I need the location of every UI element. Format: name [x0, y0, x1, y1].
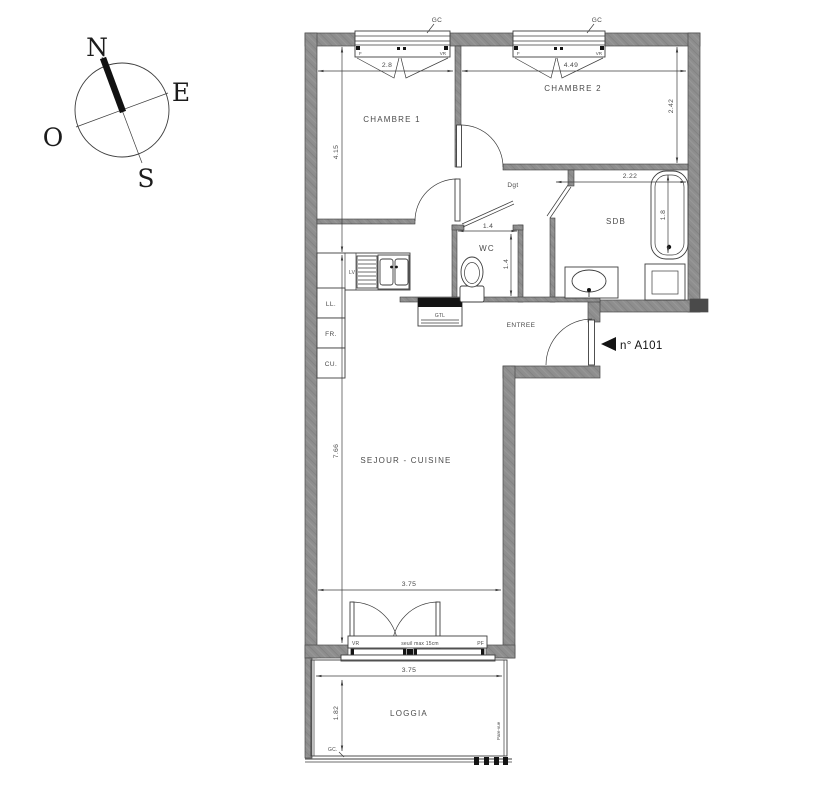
dim-chambre2-depth: 2.42: [668, 99, 675, 113]
window-hinge-icon: [356, 46, 360, 50]
dim-chambre1-depth: 4.15: [333, 145, 340, 159]
window2-f-label: F: [517, 51, 520, 56]
wall-chambre1-south: [317, 219, 415, 224]
pare-vue-label: Pare-vue: [496, 721, 501, 740]
room-label-entree: ENTREE: [507, 322, 536, 329]
gc-label-loggia: GC.: [328, 747, 338, 753]
window-handle-icon: [403, 47, 406, 50]
sink-basin-right: [395, 259, 408, 285]
sink-basin-left: [380, 259, 393, 285]
unit-number-label: n° A101: [620, 340, 663, 352]
entry-door-leaf: [589, 320, 595, 365]
window-handle-icon: [554, 47, 557, 50]
dim-chambre2-width: 4.49: [564, 62, 578, 69]
dim-bathtub-length: 1.8: [660, 210, 667, 220]
bay-seuil-label: seuil max 15cm: [401, 641, 439, 647]
wall-right-upper: [688, 33, 700, 312]
dim-wc-depth: 1.4: [503, 259, 510, 269]
wc-fixtures: [460, 257, 484, 302]
wall-chambre2-south: [503, 164, 688, 170]
wall-left: [305, 33, 317, 658]
window-frame: [513, 31, 605, 57]
room-label-chambre2: CHAMBRE 2: [544, 84, 601, 93]
room-label-chambre1: CHAMBRE 1: [363, 115, 420, 124]
wall-sdb-west: [550, 218, 555, 302]
lv-label: LV: [349, 270, 356, 276]
sink-tap-icon: [390, 266, 393, 269]
wall-wc-top-right-stub: [513, 225, 523, 230]
loggia-post: [503, 757, 508, 765]
room-label-sejour-cuisine: SEJOUR - CUISINE: [360, 456, 451, 465]
window-handle-icon: [560, 47, 563, 50]
bay-vr-label: VR: [352, 641, 360, 647]
loggia-post: [474, 757, 479, 765]
gtl-unit: GTL: [418, 298, 462, 326]
toilet-tank: [460, 286, 484, 302]
window-handle-icon: [397, 47, 400, 50]
window1-vr-label: VR: [440, 51, 447, 56]
wall-wc-right: [518, 225, 523, 302]
loggia-post: [484, 757, 489, 765]
wall-bottom-right: [597, 300, 700, 312]
compass-north-label: N: [86, 33, 108, 62]
room-label-dgt: Dgt: [507, 182, 518, 189]
bay-pf-label: PF: [477, 641, 484, 647]
sink-tap-icon: [587, 288, 591, 292]
bay-rail-right: [414, 649, 484, 655]
wall-entree-south: [503, 366, 600, 378]
dim-loggia-depth: 1.82: [333, 706, 340, 720]
room-label-loggia: LOGGIA: [390, 709, 428, 718]
window-hinge-icon: [444, 46, 448, 50]
wall-wc-left: [452, 225, 457, 302]
compass-west-label: O: [43, 123, 64, 152]
loggia-post: [494, 757, 499, 765]
fr-label: FR.: [325, 331, 337, 338]
wall-sdb-stub: [568, 170, 574, 186]
gc-label-window2: GC: [592, 17, 603, 24]
dim-sejour-width: 3.75: [402, 581, 416, 588]
cu-label: CU.: [325, 361, 337, 368]
sink-tap-icon: [395, 266, 398, 269]
wall-sejour-right: [503, 366, 515, 658]
dim-chambre1-width: 2.8: [382, 62, 392, 69]
window-hinge-icon: [600, 46, 604, 50]
ll-label: LL.: [326, 301, 336, 308]
gtl-black-bar: [418, 298, 462, 307]
gc-label-window1: GC: [432, 17, 443, 24]
window1-f-label: F: [359, 51, 362, 56]
wall-wc-top-left-stub: [452, 225, 464, 230]
gtl-label: GTL: [435, 313, 445, 319]
window-hinge-icon: [514, 46, 518, 50]
window2-vr-label: VR: [596, 51, 603, 56]
dim-sdb-width: 2.22: [623, 173, 637, 180]
dim-wc-width: 1.4: [483, 223, 493, 230]
floor-plan-canvas: N E S O F: [0, 0, 836, 800]
washer-location: [645, 264, 685, 300]
compass-south-label: S: [137, 164, 154, 193]
room-label-wc: WC: [479, 244, 495, 253]
dim-sejour-depth: 7.66: [333, 444, 340, 458]
window-frame: [355, 31, 450, 57]
door-chambre1-leaf: [455, 179, 460, 221]
compass-east-label: E: [172, 78, 190, 107]
bathtub-drain-icon: [667, 245, 671, 249]
dim-loggia-width: 3.75: [402, 667, 416, 674]
door-chambre2-leaf: [457, 125, 462, 167]
bay-rail-left: [351, 649, 406, 655]
wall-end-cap: [690, 299, 708, 312]
room-label-sdb: SDB: [606, 217, 626, 226]
